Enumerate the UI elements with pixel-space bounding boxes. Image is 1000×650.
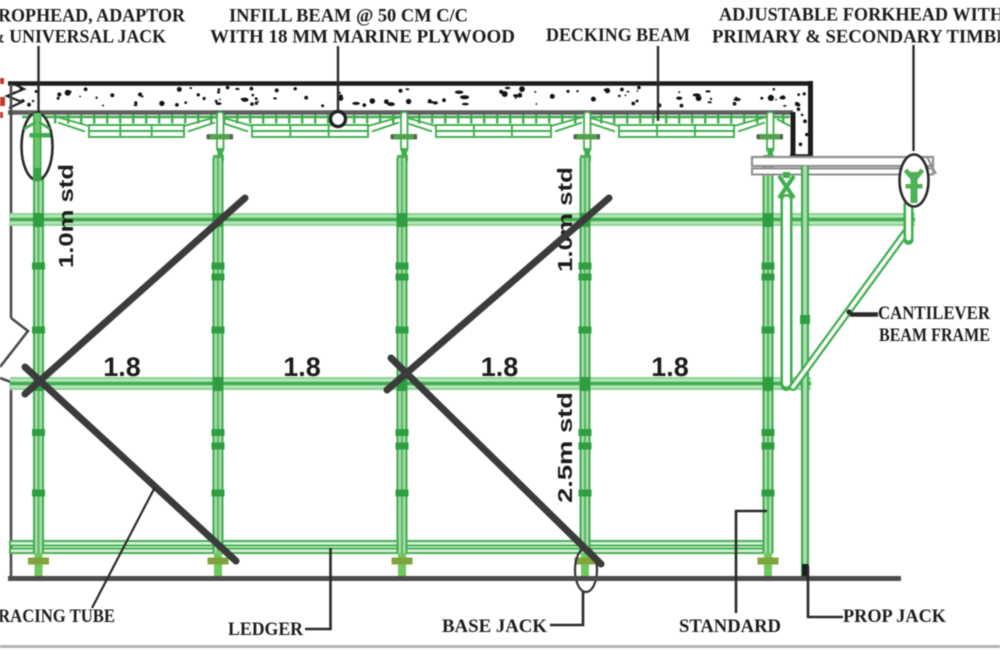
svg-text:LEDGER: LEDGER [228,619,303,640]
svg-text:PROP JACK: PROP JACK [843,606,946,627]
svg-text:CANTILEVER: CANTILEVER [878,303,990,324]
svg-text:BASE JACK: BASE JACK [442,616,547,637]
svg-text:1.8: 1.8 [651,352,689,382]
svg-text:INFILL BEAM @ 50 CM C/C: INFILL BEAM @ 50 CM C/C [229,6,468,27]
svg-text:1.8: 1.8 [103,352,141,382]
svg-text:WITH 18 MM MARINE PLYWOOD: WITH 18 MM MARINE PLYWOOD [210,27,515,48]
svg-text:2.5m std: 2.5m std [555,392,577,503]
svg-text:BEAM FRAME: BEAM FRAME [879,325,990,346]
svg-text:ADJUSTABLE FORKHEAD WITH: ADJUSTABLE FORKHEAD WITH [719,5,1000,26]
svg-text:DROPHEAD, ADAPTOR: DROPHEAD, ADAPTOR [0,6,185,27]
svg-text:1.8: 1.8 [283,352,321,382]
svg-text:PRIMARY & SECONDARY TIMBER: PRIMARY & SECONDARY TIMBER [712,27,1000,48]
svg-text:& UNIVERSAL JACK: & UNIVERSAL JACK [0,27,166,48]
svg-text:1.8: 1.8 [481,352,519,382]
svg-text:1.0m std: 1.0m std [56,164,78,268]
svg-text:DECKING BEAM: DECKING BEAM [546,25,690,46]
svg-text:BRACING TUBE: BRACING TUBE [0,606,115,627]
svg-text:1.0m std: 1.0m std [555,167,577,272]
svg-text:STANDARD: STANDARD [679,616,781,637]
